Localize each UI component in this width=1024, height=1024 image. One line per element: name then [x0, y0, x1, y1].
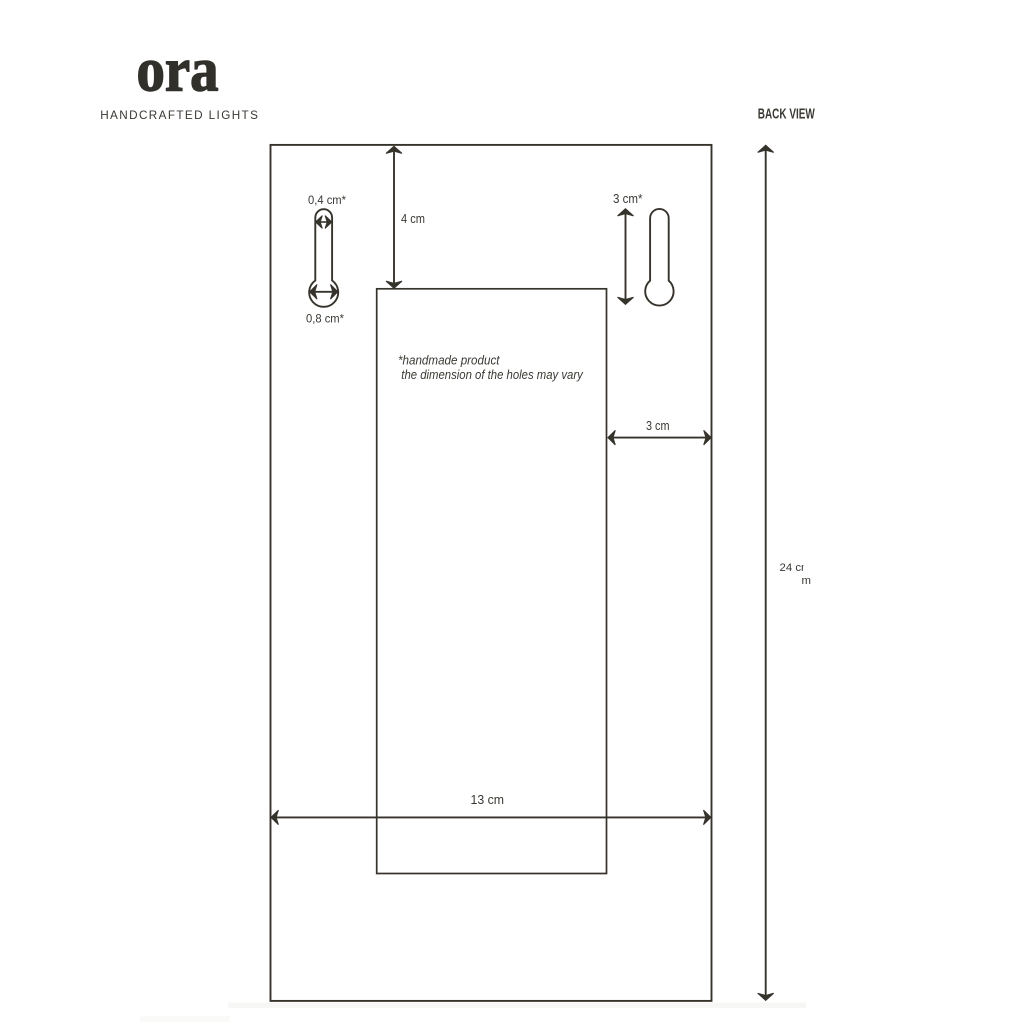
- svg-text:m: m: [802, 575, 812, 587]
- svg-text:4 cm: 4 cm: [401, 212, 425, 226]
- svg-text:13 cm: 13 cm: [471, 793, 505, 807]
- svg-text:the dimension of the holes may: the dimension of the holes may vary: [401, 368, 583, 382]
- svg-text:ora: ora: [137, 37, 219, 105]
- svg-text:HANDCRAFTED LIGHTS: HANDCRAFTED LIGHTS: [100, 109, 259, 122]
- svg-text:*handmade product: *handmade product: [398, 353, 500, 367]
- svg-text:0,8 cm*: 0,8 cm*: [306, 312, 344, 326]
- svg-text:24 cm: 24 cm: [780, 562, 811, 574]
- svg-text:0,4 cm*: 0,4 cm*: [308, 193, 346, 207]
- svg-text:3 cm*: 3 cm*: [613, 192, 643, 206]
- svg-text:BACK VIEW: BACK VIEW: [758, 106, 816, 123]
- svg-text:3 cm: 3 cm: [646, 419, 670, 433]
